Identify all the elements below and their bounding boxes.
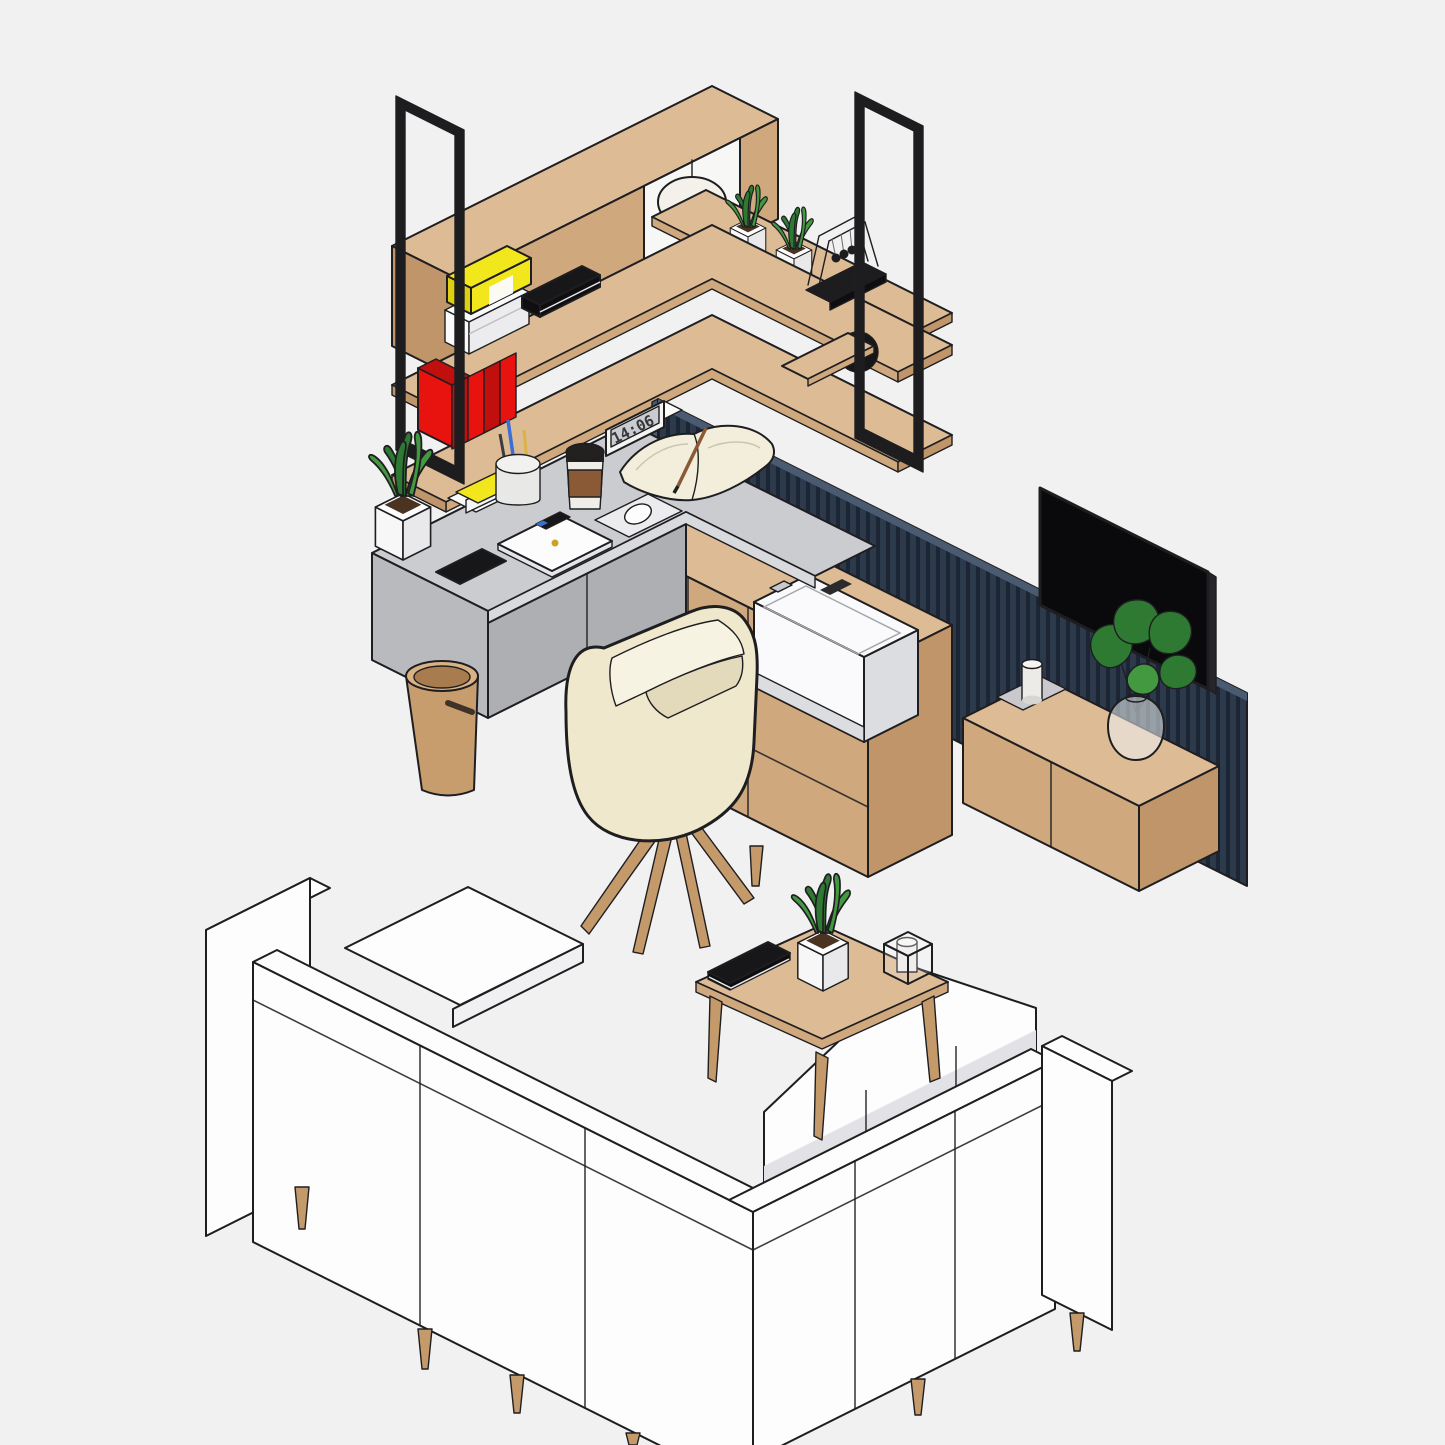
foot-4 [626,1433,640,1445]
coffee-lid [566,444,604,461]
table-planter-cube [798,930,848,991]
candle-lantern [884,932,932,984]
laptop-logo [552,540,559,547]
coffee-sleeve [568,470,602,497]
scene-canvas: 14:06 [0,0,1445,1445]
isometric-furniture-illustration: 14:06 [0,0,1445,1445]
basket-interior [414,666,470,688]
leaf-4 [1160,655,1196,689]
foot-2 [418,1329,432,1369]
cup-rim [496,455,540,474]
foot-5 [911,1379,925,1415]
table-left-leg [708,996,722,1082]
coffee-cup [566,444,604,510]
candle-top [1022,660,1042,669]
desk-planter-cube [375,493,430,560]
foot-6 [1070,1313,1084,1351]
glass-vase [1108,696,1164,760]
leaf-3 [1149,611,1191,653]
candle-base [1022,696,1042,705]
table-snake-plant [792,874,850,933]
foot-3 [510,1375,524,1413]
cradle-ball-1 [832,254,841,263]
right-arm [1042,1036,1132,1330]
left-back-face [253,962,753,1445]
leaf-5 [1127,664,1159,694]
chaise-cushion [345,887,583,1005]
basket-body [406,676,478,796]
swivel-chair [566,607,757,954]
cradle-bar-2 [819,217,855,236]
waste-basket [406,661,478,796]
red-binder-spine-3 [484,361,500,433]
red-binder-spine-4 [500,353,516,425]
red-binder-spine-2 [468,369,484,441]
chaise-foot [750,846,763,886]
candle-body [1022,664,1042,700]
sofa-left-wing [253,950,777,1445]
right-arm-face [1042,1046,1112,1330]
sofa-set [206,846,1132,1445]
cradle-ball-2 [840,250,849,259]
